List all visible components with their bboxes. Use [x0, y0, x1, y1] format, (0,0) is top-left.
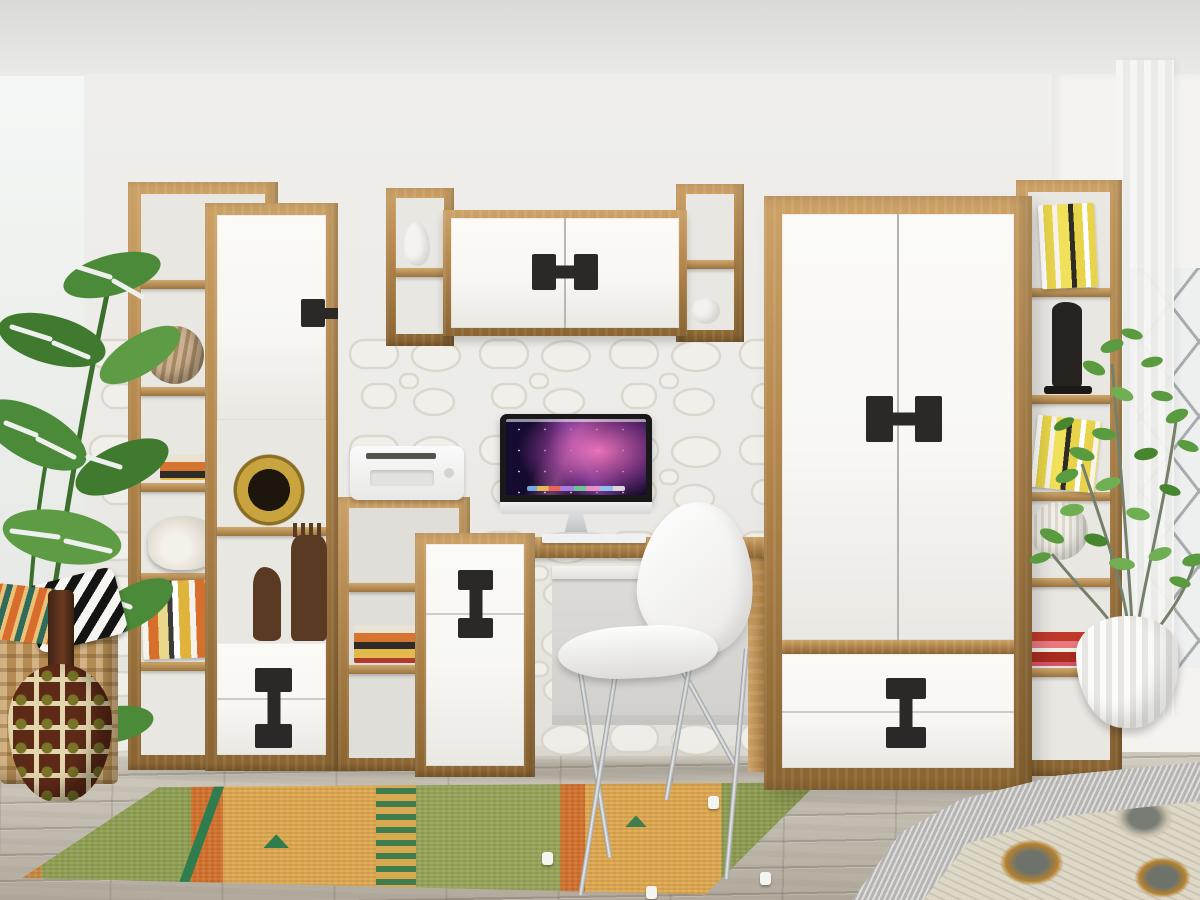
doors-handle [532, 254, 598, 290]
chair-foot [542, 852, 553, 865]
rug-pattern-band [376, 780, 416, 898]
wardrobe-drawer-handle [886, 678, 926, 748]
yellow-books [1038, 203, 1098, 290]
shelf [396, 268, 444, 277]
narrow-drawer-cabinet [415, 533, 535, 777]
figurine-crown [293, 523, 325, 537]
room-photo [0, 0, 1200, 900]
wardrobe-mid-rail [782, 640, 1014, 654]
wooden-figurine-small [253, 567, 281, 641]
shelf [1028, 288, 1110, 297]
chair-leg [664, 662, 693, 801]
wall-cabinet-body [443, 210, 687, 336]
printer-button [444, 468, 454, 478]
cabinet-handle [458, 570, 493, 638]
drawer-handle [255, 668, 292, 748]
printer [350, 446, 464, 500]
chair-leg [576, 660, 612, 858]
printer-paper-slot [366, 453, 436, 459]
apple-ornament [692, 298, 720, 324]
door-handle [301, 299, 325, 327]
ceiling [0, 0, 1200, 80]
dock [527, 486, 625, 491]
chair-leg [724, 648, 749, 880]
chair-foot [760, 872, 771, 885]
white-chair [520, 500, 790, 900]
gold-ring-mask [233, 453, 305, 527]
vase-body [8, 664, 112, 802]
wall-cabinet-center [386, 182, 744, 350]
wardrobe [764, 196, 1032, 790]
menu-bar [506, 419, 646, 422]
wardrobe-doors-handle [866, 396, 942, 442]
door-handle-stub [323, 308, 338, 319]
shelf-back-panel [396, 198, 444, 334]
imac-screen-wallpaper [506, 419, 646, 495]
printer-output-tray [370, 470, 434, 486]
imac-display [500, 414, 652, 504]
ornamental-vase [8, 590, 112, 802]
chair-foot [646, 886, 657, 899]
tall-cabinet-left [205, 203, 338, 771]
wooden-figurine-tall [291, 535, 327, 641]
shelf [686, 260, 734, 269]
chair-seat [557, 622, 720, 682]
chair-foot [708, 796, 719, 809]
